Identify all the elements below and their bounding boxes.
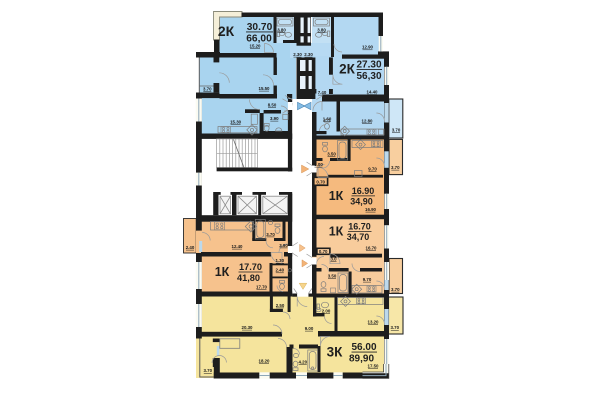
svg-text:3.70: 3.70	[391, 325, 400, 330]
svg-text:0.70: 0.70	[319, 249, 328, 254]
svg-text:56,30: 56,30	[356, 71, 381, 82]
svg-text:3.70: 3.70	[203, 87, 212, 92]
svg-text:34,90: 34,90	[350, 197, 373, 207]
svg-text:17.70: 17.70	[256, 285, 268, 290]
svg-text:3.70: 3.70	[204, 368, 213, 373]
svg-text:3.90: 3.90	[279, 243, 288, 248]
svg-text:2.00: 2.00	[322, 309, 331, 314]
svg-text:3.50: 3.50	[327, 152, 336, 157]
svg-text:9.00: 9.00	[305, 326, 314, 331]
svg-text:56.00: 56.00	[351, 342, 376, 353]
svg-text:12.80: 12.80	[362, 119, 374, 124]
svg-text:27.30: 27.30	[356, 60, 381, 71]
svg-text:3.70: 3.70	[391, 165, 400, 170]
svg-text:30.70: 30.70	[247, 22, 273, 33]
svg-text:3.80: 3.80	[277, 28, 286, 33]
svg-text:16.90: 16.90	[352, 186, 375, 196]
svg-text:2.30: 2.30	[293, 52, 302, 57]
svg-text:15.20: 15.20	[250, 44, 262, 49]
svg-text:1К: 1К	[329, 189, 344, 203]
svg-text:3.70: 3.70	[266, 232, 275, 237]
svg-text:9.70: 9.70	[363, 277, 372, 282]
svg-text:16.90: 16.90	[365, 207, 377, 212]
svg-text:12.90: 12.90	[362, 45, 374, 50]
svg-text:41,80: 41,80	[237, 273, 260, 283]
svg-text:2.40: 2.40	[276, 268, 285, 273]
svg-text:1К: 1К	[329, 225, 344, 239]
svg-text:2.30: 2.30	[304, 52, 313, 57]
svg-text:12.40: 12.40	[232, 244, 244, 249]
svg-text:4.20: 4.20	[299, 360, 308, 365]
svg-text:2.50: 2.50	[276, 303, 285, 308]
svg-text:2К: 2К	[218, 23, 235, 39]
svg-text:20.30: 20.30	[242, 325, 254, 330]
svg-text:2К: 2К	[339, 62, 356, 77]
svg-text:1К: 1К	[215, 265, 230, 279]
svg-text:14.40: 14.40	[367, 90, 379, 95]
svg-text:3.90: 3.90	[270, 116, 279, 121]
svg-text:3.70: 3.70	[392, 128, 401, 133]
svg-text:8.50: 8.50	[268, 103, 277, 108]
svg-text:7.40: 7.40	[318, 90, 327, 95]
svg-text:9.70: 9.70	[368, 167, 377, 172]
svg-text:3.70: 3.70	[391, 287, 400, 292]
svg-text:3К: 3К	[327, 345, 344, 360]
svg-text:15.30: 15.30	[230, 119, 242, 124]
svg-text:0.70: 0.70	[316, 180, 325, 185]
svg-text:17.70: 17.70	[239, 262, 262, 272]
svg-text:1.60: 1.60	[323, 117, 332, 122]
svg-text:16.70: 16.70	[348, 222, 371, 232]
svg-text:18.20: 18.20	[259, 359, 271, 364]
svg-text:34,70: 34,70	[347, 232, 370, 242]
svg-text:13.20: 13.20	[368, 320, 380, 325]
svg-text:1.30: 1.30	[276, 258, 285, 263]
svg-text:3.00: 3.00	[314, 162, 323, 167]
svg-text:3.50: 3.50	[328, 274, 337, 279]
svg-text:15.50: 15.50	[259, 86, 271, 91]
svg-text:17.50: 17.50	[368, 364, 380, 369]
svg-text:16.70: 16.70	[366, 246, 378, 251]
svg-text:2.40: 2.40	[186, 245, 195, 250]
svg-text:3.80: 3.80	[317, 28, 326, 33]
svg-text:3.0: 3.0	[330, 257, 337, 262]
